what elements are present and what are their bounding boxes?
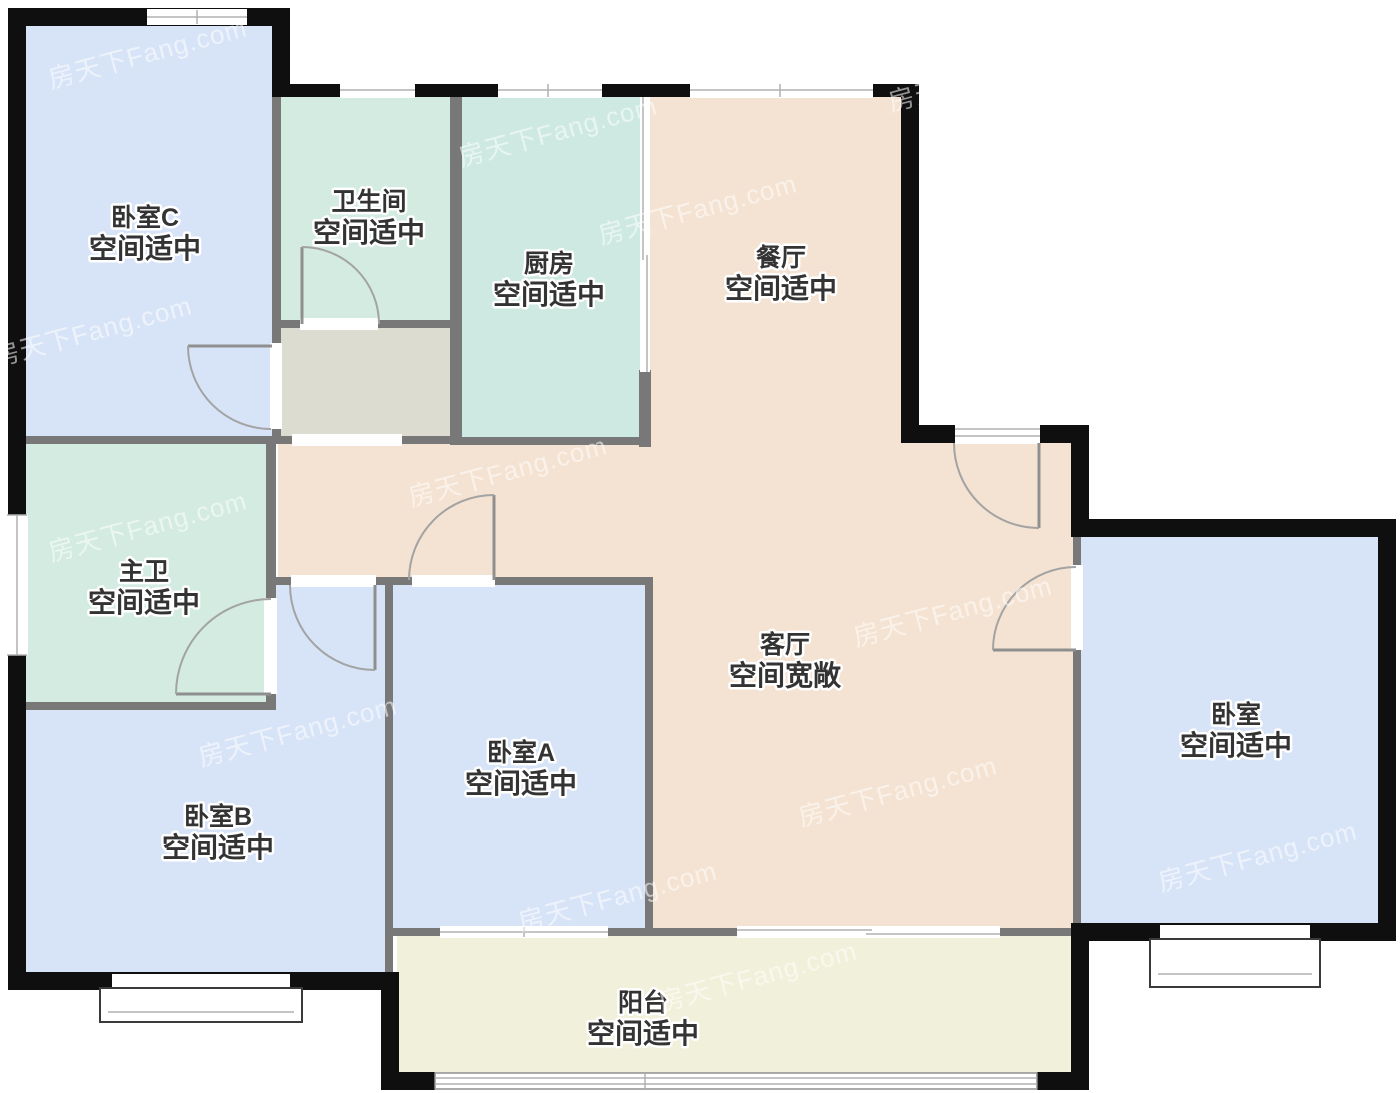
opening-bedroom-right-door xyxy=(1071,565,1083,650)
watermark-text: 房天下Fang.com xyxy=(1105,265,1310,347)
label-living-status: 空间宽敞 xyxy=(729,659,842,691)
label-bedroom-right-name: 卧室 xyxy=(1211,700,1261,729)
label-master-bath-status: 空间适中 xyxy=(88,586,200,618)
sliding-door-balcony xyxy=(737,926,1000,938)
balcony-railing xyxy=(435,1073,1037,1089)
label-master-bath-name: 主卫 xyxy=(119,558,169,586)
bay-window-bedroom-right xyxy=(1150,925,1320,987)
opening-bedroom-b-door xyxy=(291,575,376,587)
label-bathroom-status: 空间适中 xyxy=(313,216,425,248)
bay-window-bedroom-b xyxy=(100,974,302,1022)
opening-bedroom-c-door xyxy=(270,343,282,429)
label-bathroom-name: 卫生间 xyxy=(331,188,406,216)
label-kitchen-name: 厨房 xyxy=(524,249,574,278)
window-dining-top xyxy=(690,83,873,98)
label-bedroom-a-status: 空间适中 xyxy=(465,767,577,799)
label-bedroom-a-name: 卧室A xyxy=(487,738,555,767)
label-bedroom-right-status: 空间适中 xyxy=(1180,729,1292,761)
opening-bathroom-door xyxy=(300,318,378,330)
label-bedroom-b-status: 空间适中 xyxy=(162,831,274,863)
label-kitchen-status: 空间适中 xyxy=(493,278,605,310)
label-dining-status: 空间适中 xyxy=(725,272,837,304)
watermark-text: 房天下Fang.com xyxy=(885,35,1090,117)
window-kitchen-top xyxy=(498,83,602,98)
room-vestibule xyxy=(279,324,452,438)
window-master-bath-left xyxy=(6,515,28,655)
label-bedroom-b-name: 卧室B xyxy=(184,802,252,831)
floorplan-canvas: 卧室C 空间适中 卫生间 空间适中 厨房 空间适中 餐厅 空间适中 主卫 空间适… xyxy=(0,0,1400,1093)
room-balcony xyxy=(397,934,1075,1074)
opening-vestibule xyxy=(292,434,402,446)
label-dining-name: 餐厅 xyxy=(756,244,806,272)
opening-entrance-door xyxy=(955,424,1040,444)
label-balcony-status: 空间适中 xyxy=(587,1017,699,1049)
floorplan: 卧室C 空间适中 卫生间 空间适中 厨房 空间适中 餐厅 空间适中 主卫 空间适… xyxy=(0,0,1400,1093)
label-bedroom-c-name: 卧室C xyxy=(111,203,179,232)
label-bedroom-c-status: 空间适中 xyxy=(89,232,201,264)
label-living-name: 客厅 xyxy=(760,630,810,659)
opening-bedroom-a-door xyxy=(412,575,495,587)
window-bathroom-top xyxy=(340,83,415,98)
opening-master-bath-door xyxy=(264,598,277,694)
room-fills xyxy=(24,24,1380,1074)
